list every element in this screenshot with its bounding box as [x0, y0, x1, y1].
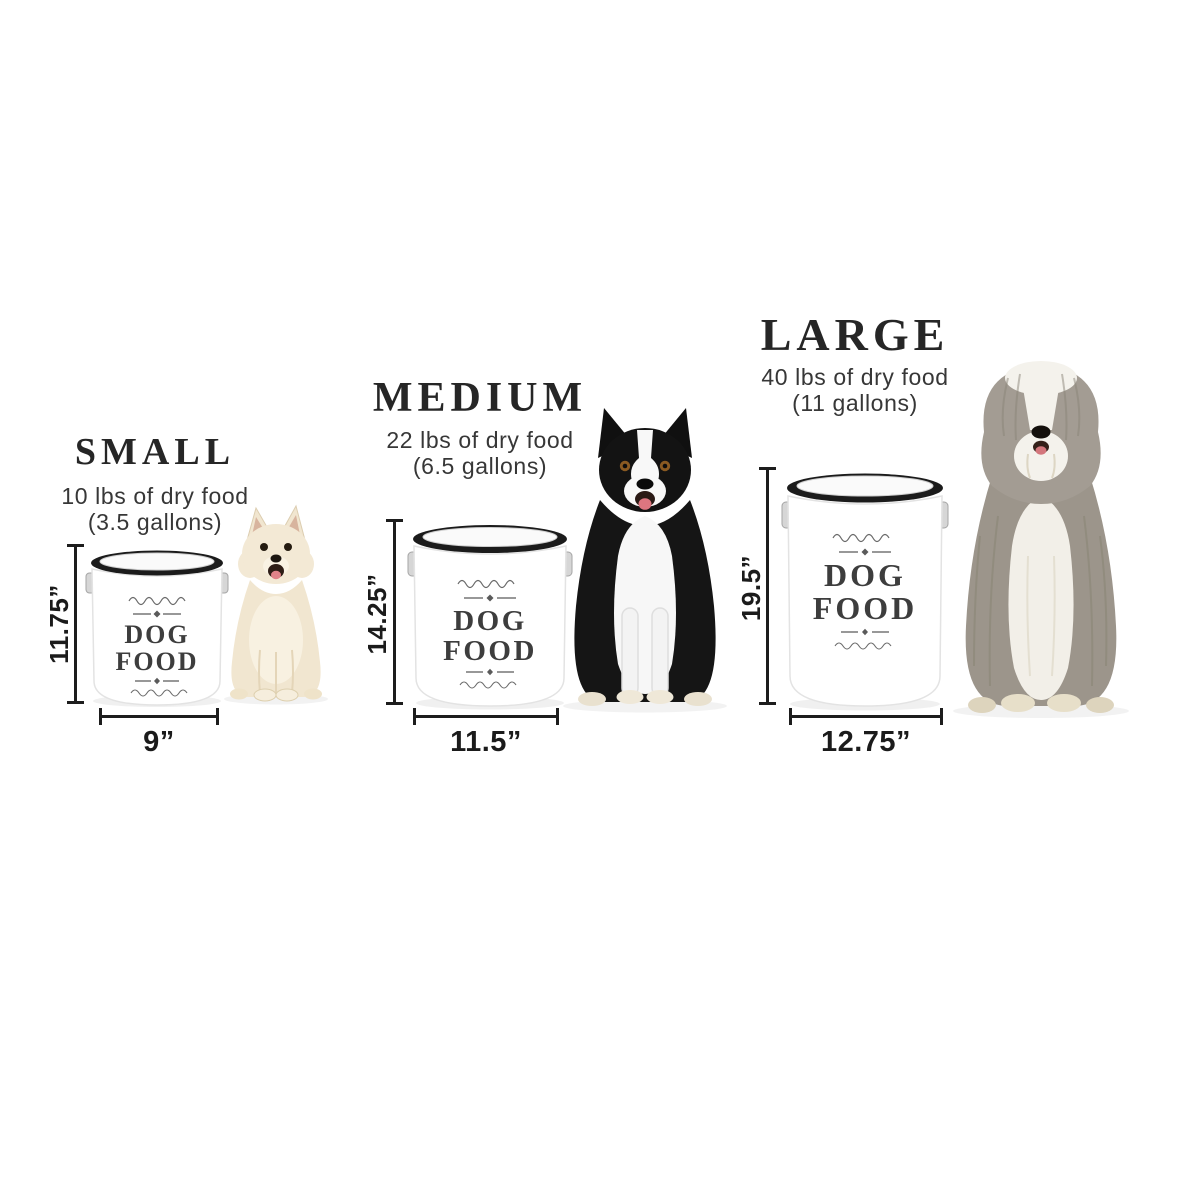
height-dimension-line-large: [766, 467, 769, 705]
dog-illustration-large: [940, 336, 1142, 720]
width-label-medium: 11.5”: [413, 726, 559, 759]
height-label-large: 19.5”: [736, 513, 760, 663]
canister-large: DOG FOOD: [781, 466, 949, 712]
height-label-small: 11.75”: [44, 554, 68, 694]
canister-label-line2: FOOD: [443, 635, 537, 667]
canister-label-line2: FOOD: [813, 590, 917, 626]
capacity-large: 40 lbs of dry food: [740, 364, 970, 391]
canister-label-line2: FOOD: [115, 647, 198, 676]
dog-illustration-small: [216, 500, 336, 706]
canister-lid-top: [423, 528, 557, 547]
size-title-small: SMALL: [35, 430, 275, 474]
height-dimension-line-small: [74, 544, 77, 704]
dog-illustration-medium: [548, 396, 742, 714]
volume-large: (11 gallons): [740, 390, 970, 417]
width-dimension-line-large: [789, 715, 943, 718]
width-dimension-line-medium: [413, 715, 559, 718]
canister-small: DOG FOOD: [85, 543, 229, 709]
height-label-medium: 14.25”: [362, 539, 386, 689]
canister-label-line1: DOG: [124, 620, 189, 649]
canister-lid-top: [100, 553, 214, 570]
height-dimension-line-medium: [393, 519, 396, 705]
width-label-small: 9”: [99, 726, 219, 759]
size-comparison-diagram: SMALL 10 lbs of dry food (3.5 gallons) 1…: [0, 0, 1200, 1200]
size-title-large: LARGE: [740, 308, 970, 361]
canister-lid-top: [797, 476, 933, 496]
canister-label-line1: DOG: [453, 605, 527, 637]
width-dimension-line-small: [99, 715, 219, 718]
width-label-large: 12.75”: [789, 726, 943, 759]
canister-label-line1: DOG: [824, 557, 906, 593]
